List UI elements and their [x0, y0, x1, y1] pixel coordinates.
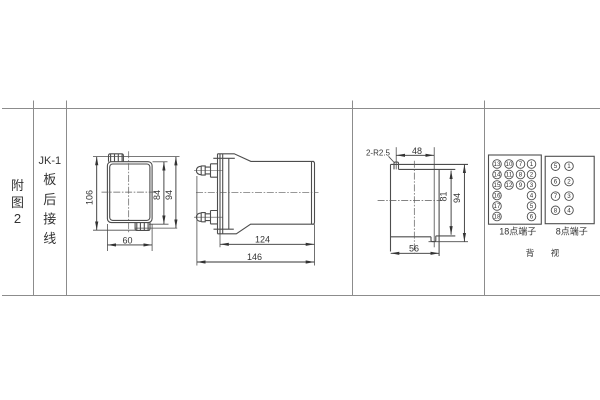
svg-text:18点端子: 18点端子: [499, 226, 536, 237]
svg-text:94: 94: [164, 190, 174, 200]
svg-text:板: 板: [43, 172, 56, 187]
svg-text:146: 146: [247, 252, 262, 262]
svg-text:11: 11: [506, 172, 513, 179]
svg-text:线: 线: [43, 231, 56, 246]
svg-text:106: 106: [85, 190, 95, 205]
svg-text:56: 56: [409, 243, 419, 253]
svg-text:2: 2: [14, 211, 21, 226]
svg-text:2: 2: [567, 179, 571, 186]
svg-text:视: 视: [551, 248, 560, 258]
svg-text:8点端子: 8点端子: [556, 226, 588, 237]
svg-text:后: 后: [43, 192, 56, 207]
svg-text:13: 13: [494, 161, 501, 168]
svg-text:94: 94: [452, 193, 462, 203]
svg-text:8: 8: [519, 172, 523, 179]
svg-text:2: 2: [530, 172, 534, 179]
svg-text:81: 81: [439, 191, 449, 201]
svg-text:8: 8: [554, 207, 558, 214]
svg-text:5: 5: [530, 203, 534, 210]
svg-text:6: 6: [530, 214, 534, 221]
svg-text:4: 4: [530, 193, 534, 200]
svg-text:1: 1: [567, 163, 571, 170]
svg-text:48: 48: [412, 146, 422, 156]
svg-text:JK-1: JK-1: [38, 155, 61, 167]
svg-text:10: 10: [506, 161, 513, 168]
svg-text:5: 5: [554, 163, 558, 170]
svg-text:1: 1: [530, 161, 534, 168]
svg-text:背: 背: [526, 248, 535, 258]
svg-text:图: 图: [11, 195, 24, 210]
svg-text:7: 7: [519, 161, 523, 168]
svg-text:3: 3: [530, 182, 534, 189]
svg-text:60: 60: [122, 235, 132, 245]
svg-text:3: 3: [567, 193, 571, 200]
svg-text:16: 16: [494, 193, 501, 200]
svg-text:15: 15: [494, 182, 501, 189]
svg-text:4: 4: [567, 207, 571, 214]
svg-text:9: 9: [519, 182, 523, 189]
svg-text:84: 84: [152, 190, 162, 200]
svg-text:12: 12: [506, 182, 513, 189]
svg-text:18: 18: [494, 214, 501, 221]
svg-text:2-R2.5: 2-R2.5: [366, 148, 391, 157]
svg-text:接: 接: [43, 212, 56, 227]
svg-text:14: 14: [494, 172, 501, 179]
svg-text:7: 7: [554, 193, 558, 200]
svg-text:6: 6: [554, 179, 558, 186]
svg-text:附: 附: [11, 178, 24, 193]
svg-text:124: 124: [255, 234, 270, 244]
svg-text:17: 17: [494, 203, 501, 210]
